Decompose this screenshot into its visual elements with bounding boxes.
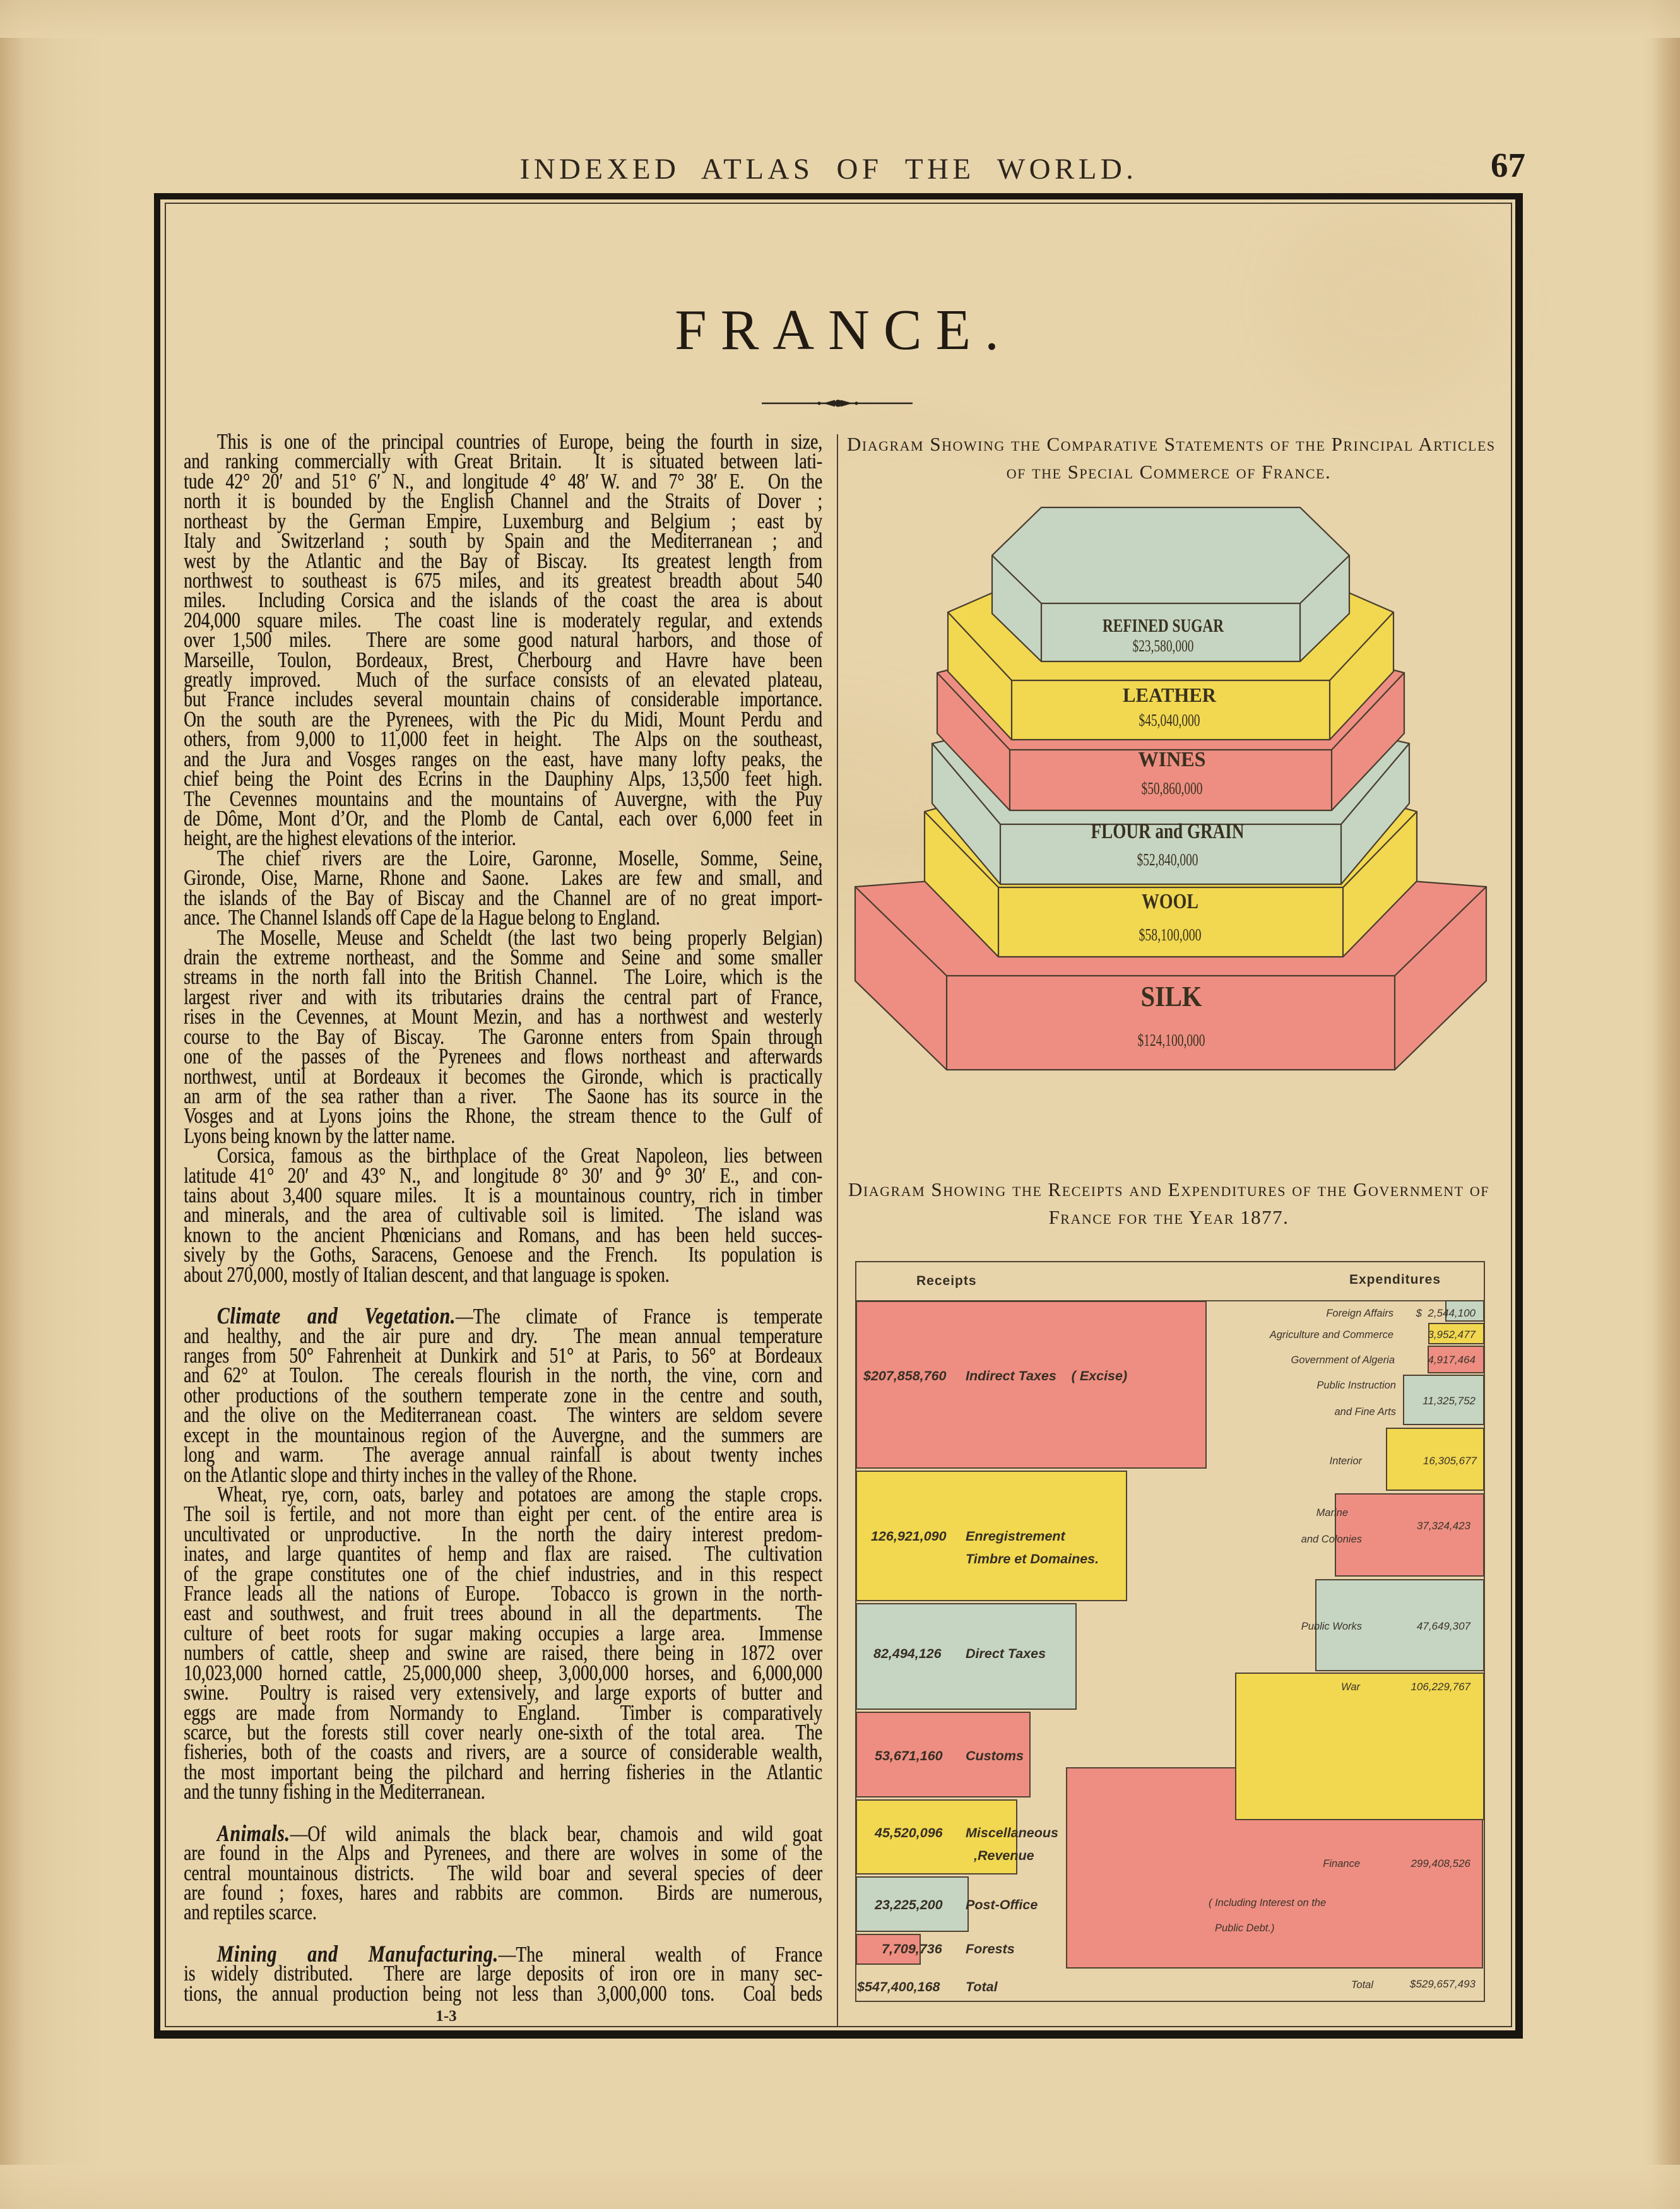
- svg-text:$52,840,000: $52,840,000: [1137, 850, 1198, 869]
- svg-text:WINES: WINES: [1139, 748, 1206, 771]
- svg-text:$45,040,000: $45,040,000: [1139, 711, 1200, 730]
- svg-text:$124,100,000: $124,100,000: [1138, 1031, 1205, 1050]
- svg-text:REFINED SUGAR: REFINED SUGAR: [1103, 615, 1224, 636]
- svg-text:$23,580,000: $23,580,000: [1133, 637, 1194, 655]
- svg-text:FLOUR and GRAIN: FLOUR and GRAIN: [1091, 820, 1245, 843]
- svg-text:WOOL: WOOL: [1142, 890, 1198, 913]
- svg-text:SILK: SILK: [1141, 980, 1202, 1012]
- svg-text:$58,100,000: $58,100,000: [1139, 925, 1202, 944]
- svg-text:$50,860,000: $50,860,000: [1142, 779, 1203, 798]
- svg-text:LEATHER: LEATHER: [1123, 684, 1217, 706]
